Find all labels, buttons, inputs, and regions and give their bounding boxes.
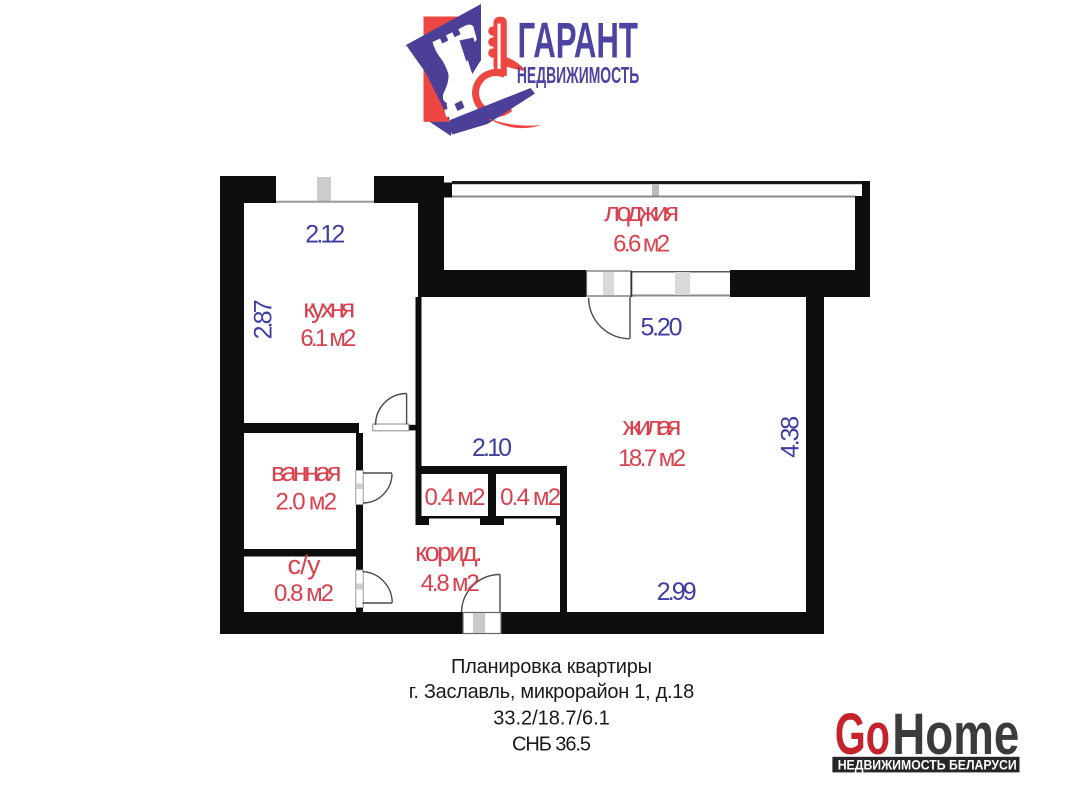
svg-text:33.2/18.7/6.1: 33.2/18.7/6.1 — [493, 708, 610, 730]
svg-text:Планировка квартиры: Планировка квартиры — [451, 656, 652, 678]
svg-text:6.6 м2: 6.6 м2 — [613, 230, 670, 257]
svg-text:0.8 м2: 0.8 м2 — [274, 580, 334, 607]
svg-text:2.0 м2: 2.0 м2 — [276, 489, 338, 516]
svg-text:лоджия: лоджия — [604, 197, 679, 227]
svg-text:4.8 м2: 4.8 м2 — [421, 570, 480, 597]
svg-text:НЕДВИЖИМОСТЬ БЕЛАРУСИ: НЕДВИЖИМОСТЬ БЕЛАРУСИ — [838, 757, 1017, 773]
svg-text:2.12: 2.12 — [305, 221, 345, 249]
svg-text:0.4 м2: 0.4 м2 — [500, 484, 561, 511]
svg-text:г. Заславль, микрорайон 1, д.1: г. Заславль, микрорайон 1, д.18 — [409, 681, 695, 703]
svg-text:0.4 м2: 0.4 м2 — [425, 484, 486, 511]
svg-text:6.1 м2: 6.1 м2 — [300, 325, 356, 352]
svg-text:НЕДВИЖИМОСТЬ: НЕДВИЖИМОСТЬ — [517, 62, 639, 88]
svg-text:жилая: жилая — [623, 411, 682, 441]
svg-text:ванная: ванная — [271, 457, 342, 487]
svg-text:ГАРАНТ: ГАРАНТ — [518, 13, 639, 69]
svg-text:СНБ 36.5: СНБ 36.5 — [512, 733, 591, 755]
svg-text:2.99: 2.99 — [657, 578, 697, 606]
svg-text:4.38: 4.38 — [776, 416, 804, 458]
svg-text:кухня: кухня — [303, 294, 355, 324]
svg-text:5.20: 5.20 — [641, 314, 683, 342]
svg-text:корид.: корид. — [415, 537, 482, 567]
svg-text:2.10: 2.10 — [472, 434, 512, 462]
svg-text:18.7 м2: 18.7 м2 — [618, 445, 686, 472]
svg-text:2.87: 2.87 — [249, 299, 277, 339]
svg-text:с/у: с/у — [288, 550, 322, 580]
